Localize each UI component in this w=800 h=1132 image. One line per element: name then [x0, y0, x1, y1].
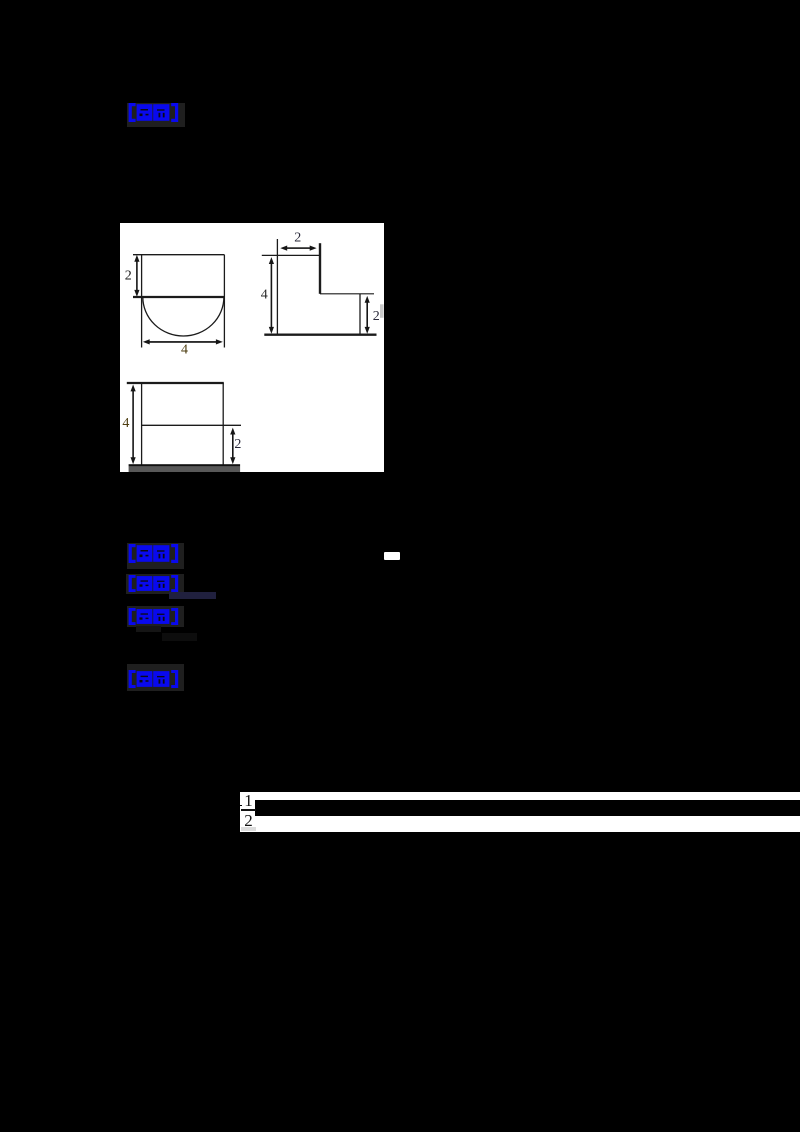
svg-text:4: 4 — [261, 287, 268, 302]
svg-text:2: 2 — [125, 268, 132, 283]
svg-text:2: 2 — [294, 231, 301, 246]
svg-text:2: 2 — [373, 309, 380, 324]
svg-text:4: 4 — [122, 416, 129, 431]
svg-text:2: 2 — [234, 437, 241, 452]
svg-text:4: 4 — [181, 343, 188, 358]
